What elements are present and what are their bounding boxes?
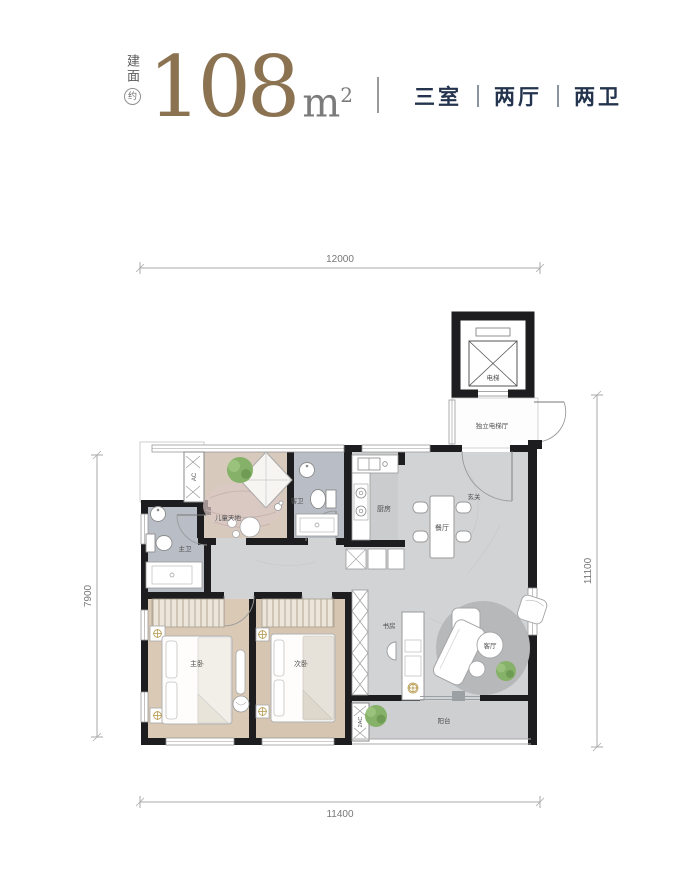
plant-icon: [496, 661, 516, 681]
window-top-left: [152, 445, 344, 452]
chair-icon: [413, 502, 428, 513]
dim-bottom-value: 11400: [326, 809, 354, 820]
vanity: [146, 562, 202, 588]
shower-tray: [296, 514, 338, 536]
tree-icon: [227, 457, 253, 483]
foyer-label: 玄关: [468, 492, 482, 501]
plant-icon: [365, 705, 387, 727]
elevator-label: 电梯: [487, 373, 501, 382]
slider-track: [452, 691, 465, 701]
window-left-bed2: [141, 692, 148, 722]
window-bottom-master: [166, 738, 234, 745]
dim-top-value: 12000: [326, 254, 354, 265]
toilet-icon: [311, 490, 337, 509]
chair-icon: [413, 531, 428, 542]
side-table: [469, 661, 485, 677]
kitchen-label: 厨房: [377, 504, 391, 513]
kids-zone-label: 儿童天地: [215, 513, 242, 522]
study-label: 书房: [383, 621, 396, 630]
ac2-label: 2AC: [358, 717, 364, 728]
play-table: [240, 517, 260, 537]
elevator-hall-label: 独立电梯厅: [476, 421, 509, 430]
master-bedroom-label: 主卧: [190, 659, 204, 668]
second-bedroom-label: 次卧: [294, 659, 308, 668]
hall-door: [534, 402, 566, 442]
wardrobe: [262, 599, 334, 627]
bed-icon: [162, 636, 232, 724]
dining-label: 餐厅: [435, 523, 449, 532]
window-bottom-second: [262, 738, 334, 745]
floorplan-drawing: 电梯 独立电梯厅: [0, 0, 678, 875]
ac-closet: AC: [184, 452, 204, 502]
guest-bath-label: 客卫: [291, 496, 305, 505]
bed-icon: [271, 634, 335, 722]
floorplan-page: 建面 约 108 m2 三室 两厅 两卫: [0, 0, 678, 875]
bench: [236, 650, 245, 694]
chair-icon: [456, 502, 471, 513]
living-label: 客厅: [484, 641, 498, 650]
dim-right-value: 11100: [583, 557, 594, 584]
window-top-kitchen: [362, 445, 430, 452]
window-left-bed1: [141, 610, 148, 640]
ac-label: AC: [192, 472, 198, 481]
duct-shaft: [352, 590, 368, 695]
dim-bottom: [136, 796, 544, 808]
balcony-ac-unit: 2AC: [352, 703, 369, 741]
chair-icon: [456, 531, 471, 542]
basket-icon: [233, 696, 249, 712]
toilet-icon: [146, 534, 172, 552]
balcony-label: 阳台: [438, 716, 451, 725]
elevator-block: 电梯 独立电梯厅: [449, 316, 566, 449]
wardrobe: [152, 599, 224, 627]
dim-left-value: 7900: [83, 584, 94, 607]
master-bath-label: 主卫: [179, 544, 193, 553]
